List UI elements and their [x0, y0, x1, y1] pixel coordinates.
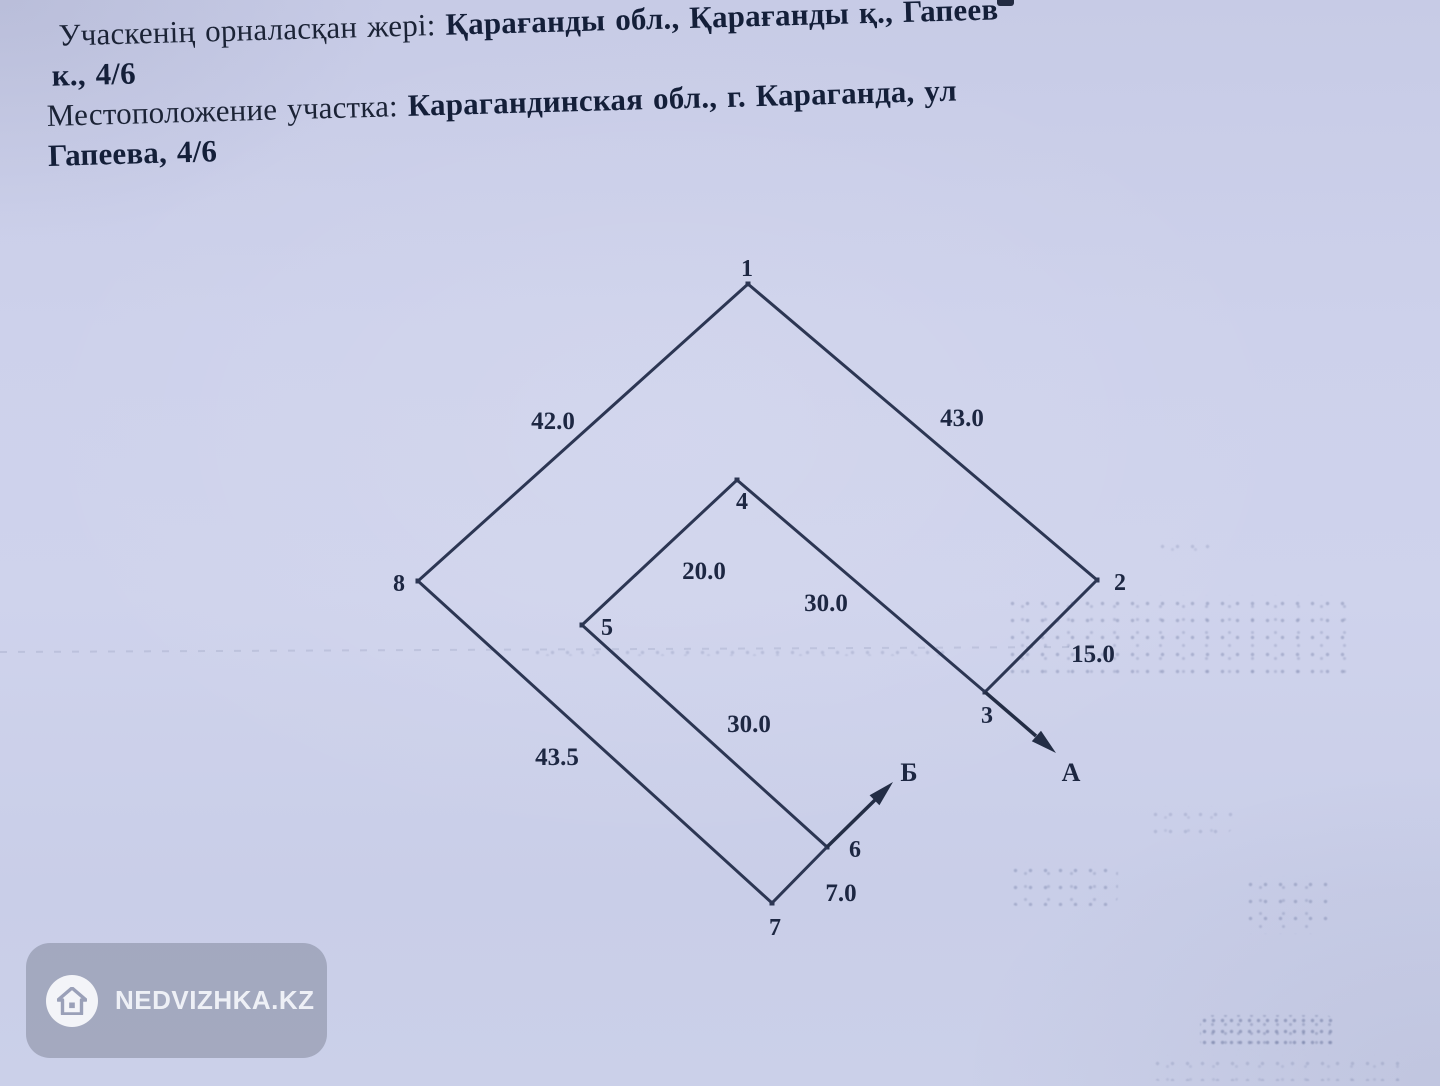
- ink-bleed-speckles: [1200, 1015, 1335, 1050]
- vertex-label-4: 4: [736, 489, 748, 515]
- direction-label-b: Б: [900, 758, 917, 787]
- parcel-plan-diagram: 1 2 3 4 5 6 7 8 43.0 15.0 30.0 20.0 30.0…: [0, 0, 1440, 1086]
- vertex-marker-2: [1095, 578, 1100, 583]
- vertex-marker-5: [580, 623, 585, 628]
- house-icon: [57, 987, 87, 1015]
- edge-length-5-6: 30.0: [727, 711, 771, 738]
- watermark-text: NEDVIZHKA.KZ: [115, 985, 315, 1016]
- ink-bleed-speckles: [1005, 595, 1350, 675]
- ink-bleed-speckles: [1243, 876, 1328, 934]
- parcel-boundary: [418, 284, 1097, 903]
- ink-bleed-speckles: [1148, 806, 1233, 834]
- vertex-label-5: 5: [601, 615, 613, 641]
- watermark-logo-circle: [46, 975, 98, 1027]
- vertex-marker-8: [416, 579, 421, 584]
- vertex-marker-4: [735, 478, 740, 483]
- vertex-label-1: 1: [741, 256, 753, 282]
- edge-length-7-8: 43.5: [535, 744, 579, 771]
- edge-length-3-4: 30.0: [804, 590, 848, 617]
- vertex-marker-7: [770, 901, 775, 906]
- direction-label-a: А: [1062, 758, 1081, 787]
- vertex-marker-1: [746, 282, 751, 287]
- crease-speckles: [530, 644, 950, 656]
- vertex-label-7: 7: [769, 915, 781, 941]
- ink-bleed-speckles: [1155, 538, 1215, 552]
- ink-bleed-speckles: [1008, 862, 1118, 906]
- vertex-label-2: 2: [1114, 570, 1126, 596]
- edge-length-4-5: 20.0: [682, 558, 726, 585]
- vertex-label-8: 8: [393, 571, 405, 597]
- edge-length-6-7: 7.0: [825, 880, 856, 907]
- ink-bleed-speckles: [1150, 1055, 1410, 1081]
- vertex-markers: [416, 282, 1100, 906]
- document-photo: Учаскенің орналасқан жері: Қарағанды обл…: [0, 0, 1440, 1086]
- direction-arrow-a: [985, 692, 1056, 753]
- edge-length-1-2: 43.0: [940, 405, 984, 432]
- edge-length-8-1: 42.0: [531, 408, 575, 435]
- vertex-label-3: 3: [981, 703, 993, 729]
- nedvizhka-watermark: NEDVIZHKA.KZ: [26, 943, 327, 1058]
- vertex-label-6: 6: [849, 837, 861, 863]
